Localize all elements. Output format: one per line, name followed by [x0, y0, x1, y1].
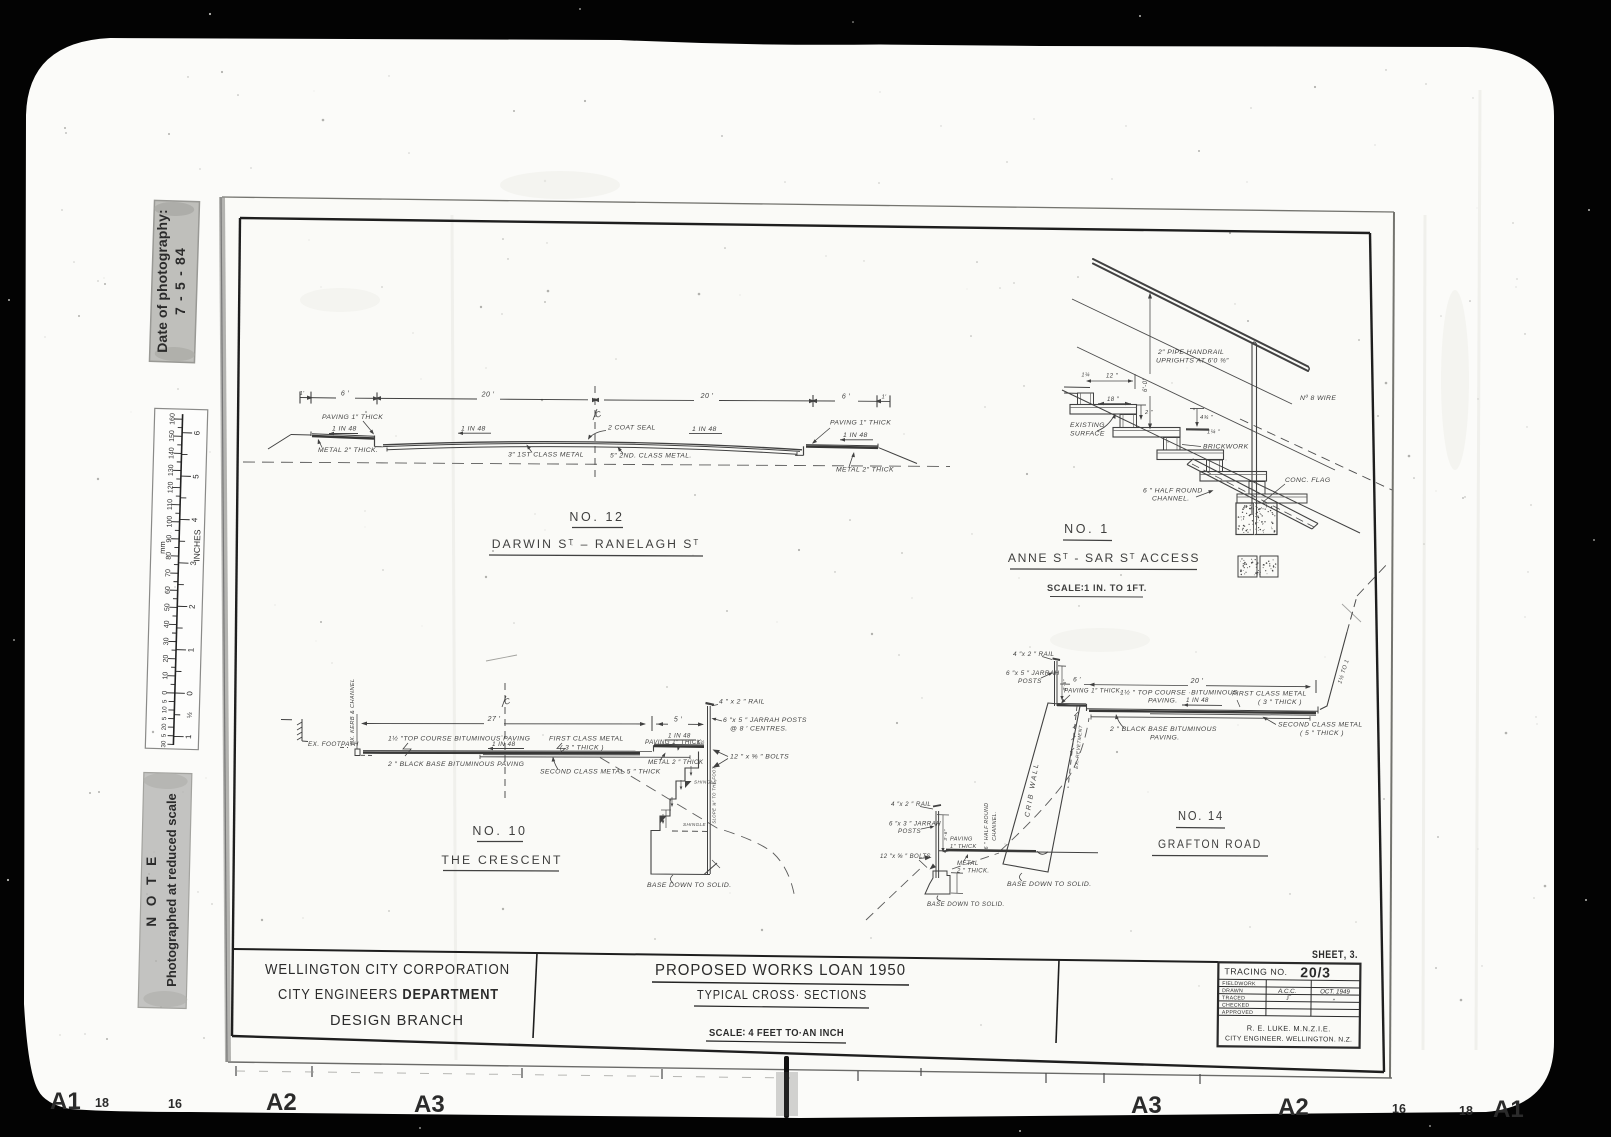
svg-text:20 ′: 20 ′	[1190, 678, 1204, 685]
svg-text:mm: mm	[158, 541, 167, 554]
svg-text:GRAFTON ROAD: GRAFTON ROAD	[1158, 837, 1262, 851]
svg-text:A2: A2	[1278, 1094, 1309, 1121]
svg-text:20: 20	[163, 654, 170, 662]
svg-text:A1: A1	[50, 1088, 81, 1115]
svg-text:4¾ ″: 4¾ ″	[1200, 415, 1214, 421]
svg-text:CHANNEL.: CHANNEL.	[1152, 496, 1190, 503]
svg-text:20 ′: 20 ′	[481, 392, 495, 399]
svg-text:1 IN 48: 1 IN 48	[461, 426, 486, 433]
svg-text:2: 2	[188, 604, 197, 609]
svg-text:½: ½	[186, 712, 194, 718]
svg-text:12 ″x ⅝ ″ BOLTS: 12 ″x ⅝ ″ BOLTS	[880, 854, 931, 860]
svg-text:DRAWN: DRAWN	[1222, 988, 1243, 994]
svg-text:SLOPE ¾″ TO THE FOOT: SLOPE ¾″ TO THE FOOT	[712, 766, 717, 823]
svg-text:4 ″x 2 ″ RAIL: 4 ″x 2 ″ RAIL	[1013, 651, 1054, 658]
svg-text:3′-6″: 3′-6″	[943, 829, 949, 841]
svg-text:NO. 12: NO. 12	[569, 510, 624, 524]
svg-text:R. E. LUKE. M.N.Z.I.E.: R. E. LUKE. M.N.Z.I.E.	[1247, 1024, 1331, 1034]
svg-text:12 ″: 12 ″	[1106, 374, 1119, 380]
svg-text:FIRST CLASS METAL: FIRST CLASS METAL	[1232, 691, 1307, 698]
svg-text:6 ″ HALF ROUND: 6 ″ HALF ROUND	[984, 803, 990, 850]
svg-text:7 - 5 - 84: 7 - 5 - 84	[172, 247, 188, 315]
svg-text:30: 30	[163, 637, 170, 645]
svg-text:70: 70	[165, 569, 172, 577]
svg-text:TRACED: TRACED	[1222, 995, 1245, 1001]
svg-text:3″ 1ST CLASS METAL: 3″ 1ST CLASS METAL	[508, 452, 584, 459]
svg-text:4 ″ x 2 ″ RAIL: 4 ″ x 2 ″ RAIL	[719, 699, 765, 706]
svg-text:@ 8 ′ CENTRES.: @ 8 ′ CENTRES.	[730, 726, 788, 733]
svg-text:140: 140	[168, 447, 175, 459]
svg-text:PAVING.: PAVING.	[1150, 735, 1180, 742]
svg-text:CHECKED: CHECKED	[1222, 1002, 1250, 1008]
svg-text:30: 30	[160, 740, 167, 748]
svg-text:POSTS: POSTS	[1018, 678, 1042, 685]
svg-text:20/3: 20/3	[1300, 964, 1331, 980]
svg-text:OCT. 1949: OCT. 1949	[1320, 988, 1350, 995]
svg-text:1½ ″ TOP COURSE ·BITUMINOUS: 1½ ″ TOP COURSE ·BITUMINOUS	[1120, 689, 1238, 697]
svg-text:1½: 1½	[697, 739, 705, 746]
svg-text:120: 120	[167, 481, 174, 493]
svg-text:METAL 2″ THICK: METAL 2″ THICK	[836, 467, 894, 474]
svg-text:A3: A3	[414, 1091, 445, 1118]
svg-text:0: 0	[162, 691, 169, 695]
svg-text:TYPICAL CROSS· SECTIONS: TYPICAL CROSS· SECTIONS	[697, 987, 867, 1002]
svg-text:CITY ENGINEERS DEPARTMENT: CITY ENGINEERS DEPARTMENT	[278, 986, 499, 1003]
svg-text:( 3 ″ THICK ): ( 3 ″ THICK )	[1258, 699, 1302, 706]
svg-text:16: 16	[168, 1097, 182, 1111]
svg-text:10: 10	[161, 706, 168, 714]
svg-text:20 ′: 20 ′	[700, 393, 714, 400]
svg-text:16: 16	[1392, 1102, 1406, 1116]
svg-text:1¼ ″: 1¼ ″	[1207, 430, 1221, 436]
svg-text:THE CRESCENT: THE CRESCENT	[441, 853, 562, 867]
svg-text:ANNE ST - SAR ST ACCESS: ANNE ST - SAR ST ACCESS	[1008, 551, 1200, 565]
svg-text:1: 1	[186, 647, 195, 652]
svg-text:„: „	[1332, 994, 1335, 1001]
svg-text:PAVING: PAVING	[950, 837, 973, 843]
svg-text:SECOND CLASS METAL: SECOND CLASS METAL	[1278, 722, 1363, 729]
svg-text:1¼: 1¼	[1081, 373, 1090, 379]
svg-text:A3: A3	[1131, 1092, 1162, 1119]
svg-text:PAVING.: PAVING.	[1148, 698, 1178, 705]
svg-text:WELLINGTON CITY CORPORATION: WELLINGTON CITY CORPORATION	[265, 961, 510, 978]
svg-text:PAVING 1″ THICK: PAVING 1″ THICK	[830, 420, 891, 427]
svg-text:BASE DOWN TO SOLID.: BASE DOWN TO SOLID.	[927, 901, 1005, 908]
svg-text:150: 150	[169, 430, 176, 442]
svg-text:90: 90	[166, 535, 173, 543]
svg-text:SCALE∶ 4 FEET TO·AN INCH: SCALE∶ 4 FEET TO·AN INCH	[709, 1028, 844, 1039]
svg-text:INCHES: INCHES	[192, 529, 203, 562]
svg-text:2 COAT SEAL: 2 COAT SEAL	[607, 425, 656, 432]
svg-text:PAVING 1″ THICK.: PAVING 1″ THICK.	[1064, 688, 1122, 695]
svg-text:18: 18	[95, 1096, 109, 1110]
svg-text:1 IN 48: 1 IN 48	[492, 741, 515, 748]
svg-text:5 ′: 5 ′	[674, 717, 683, 724]
svg-text:1 IN 48: 1 IN 48	[843, 432, 868, 439]
svg-text:2″ PIPE HANDRAIL: 2″ PIPE HANDRAIL	[1157, 349, 1224, 356]
svg-text:SCALE∶1 IN. TO 1FT.: SCALE∶1 IN. TO 1FT.	[1047, 583, 1147, 593]
svg-text:SHINGLE: SHINGLE	[683, 822, 707, 827]
svg-text:NO. 1: NO. 1	[1064, 522, 1110, 536]
svg-text:EX. KERB & CHANNEL: EX. KERB & CHANNEL	[350, 678, 356, 745]
svg-text:27 ′: 27 ′	[487, 716, 501, 723]
svg-text:DESIGN BRANCH: DESIGN BRANCH	[330, 1012, 464, 1029]
svg-text:FIRST CLASS METAL: FIRST CLASS METAL	[549, 736, 624, 743]
svg-text:BASE DOWN TO SOLID.: BASE DOWN TO SOLID.	[1007, 881, 1092, 888]
svg-text:6 ″x 5 ″ JARRAH POSTS: 6 ″x 5 ″ JARRAH POSTS	[723, 717, 807, 724]
svg-text:1′: 1′	[881, 395, 887, 401]
svg-text:100: 100	[166, 516, 173, 528]
svg-text:POSTS: POSTS	[898, 828, 921, 835]
svg-text:UPRIGHTS AT 6′0 ⅜″: UPRIGHTS AT 6′0 ⅜″	[1156, 358, 1229, 365]
svg-text:BRICKWORK: BRICKWORK	[1203, 444, 1249, 451]
svg-text:1 IN 48: 1 IN 48	[332, 426, 357, 433]
svg-text:SECOND CLASS METAL 5 ″ THICK: SECOND CLASS METAL 5 ″ THICK	[540, 769, 661, 776]
svg-text:18 ″: 18 ″	[1107, 397, 1120, 403]
svg-text:METAL 2″ THICK.: METAL 2″ THICK.	[318, 447, 378, 454]
svg-text:METAL 2 ″ THICK: METAL 2 ″ THICK	[648, 759, 704, 766]
svg-text:PAVING 1″ THICK.: PAVING 1″ THICK.	[645, 739, 703, 746]
svg-text:1 IN 48: 1 IN 48	[692, 426, 717, 433]
svg-text:NO. 10: NO. 10	[472, 824, 527, 838]
svg-text:1: 1	[184, 734, 193, 739]
svg-text:PROPOSED WORKS LOAN 1950: PROPOSED WORKS LOAN 1950	[655, 962, 906, 979]
svg-text:Date of photography:: Date of photography:	[154, 209, 170, 353]
svg-text:12 ″ x ⅝ ″ BOLTS: 12 ″ x ⅝ ″ BOLTS	[730, 754, 789, 761]
svg-text:CHANNEL.: CHANNEL.	[992, 811, 998, 840]
svg-text:20: 20	[161, 723, 168, 731]
svg-text:2 ″ BLACK BASE BITUMINOUS: 2 ″ BLACK BASE BITUMINOUS	[1109, 726, 1217, 733]
svg-text:40: 40	[164, 620, 171, 628]
svg-text:Photographed at reduced scale: Photographed at reduced scale	[164, 793, 179, 987]
svg-text:10: 10	[162, 672, 169, 680]
svg-text:6 ′: 6 ′	[842, 394, 851, 401]
svg-text:6 ″ HALF ROUND: 6 ″ HALF ROUND	[1143, 488, 1203, 495]
svg-text:N O T E: N O T E	[144, 853, 159, 926]
svg-text:60: 60	[165, 586, 172, 594]
svg-text:6 ′: 6 ′	[341, 391, 350, 398]
svg-text:( 3 ″ THICK ): ( 3 ″ THICK )	[560, 745, 604, 752]
svg-text:A1: A1	[1493, 1096, 1524, 1123]
svg-text:2 ″ BLACK BASE BITUMINOUS PAVI: 2 ″ BLACK BASE BITUMINOUS PAVING	[387, 761, 524, 768]
svg-text:4 ″x 2 ″ RAIL: 4 ″x 2 ″ RAIL	[891, 801, 931, 808]
svg-text:160: 160	[169, 413, 176, 425]
svg-text:SURFACE: SURFACE	[1070, 431, 1105, 438]
svg-text:1 IN 48: 1 IN 48	[1186, 697, 1209, 704]
svg-text:5: 5	[191, 474, 200, 479]
svg-text:NO. 14: NO. 14	[1178, 809, 1224, 823]
svg-text:EXISTING: EXISTING	[1070, 422, 1105, 429]
svg-text:APPROVED: APPROVED	[1222, 1010, 1253, 1016]
svg-text:1′: 1′	[299, 391, 305, 397]
svg-text:PAVING 1″ THICK: PAVING 1″ THICK	[322, 414, 383, 421]
svg-text:Nº 8 WIRE: Nº 8 WIRE	[1300, 395, 1336, 402]
svg-text:( 5 ″ THICK ): ( 5 ″ THICK )	[1300, 730, 1344, 737]
svg-text:110: 110	[167, 499, 174, 510]
svg-text:CONC. FLAG: CONC. FLAG	[1285, 477, 1331, 484]
svg-text:0: 0	[185, 691, 194, 696]
svg-text:SHEET‚ 3.: SHEET‚ 3.	[1312, 949, 1358, 961]
svg-text:4: 4	[190, 517, 199, 522]
svg-text:6′-0″: 6′-0″	[1143, 378, 1149, 392]
svg-text:6: 6	[193, 430, 202, 435]
svg-text:2 ″: 2 ″	[1144, 410, 1153, 416]
svg-text:FIELDWORK: FIELDWORK	[1222, 981, 1256, 987]
svg-text:BASE DOWN TO SOLID.: BASE DOWN TO SOLID.	[647, 882, 732, 889]
svg-text:5″ 2ND. CLASS METAL.: 5″ 2ND. CLASS METAL.	[610, 453, 692, 460]
svg-text:50: 50	[164, 603, 171, 611]
svg-text:18: 18	[1459, 1104, 1473, 1118]
svg-text:TRACING NO.: TRACING NO.	[1224, 966, 1287, 977]
svg-text:2 ″ THICK.: 2 ″ THICK.	[956, 869, 989, 875]
svg-text:DARWIN ST – RANELAGH ST: DARWIN ST – RANELAGH ST	[492, 537, 701, 551]
svg-text:6 ′: 6 ′	[1073, 677, 1081, 684]
svg-text:A2: A2	[266, 1089, 297, 1116]
svg-text:CITY ENGINEER. WELLINGTON. N.Z: CITY ENGINEER. WELLINGTON. N.Z.	[1225, 1035, 1352, 1043]
svg-text:130: 130	[168, 464, 175, 476]
